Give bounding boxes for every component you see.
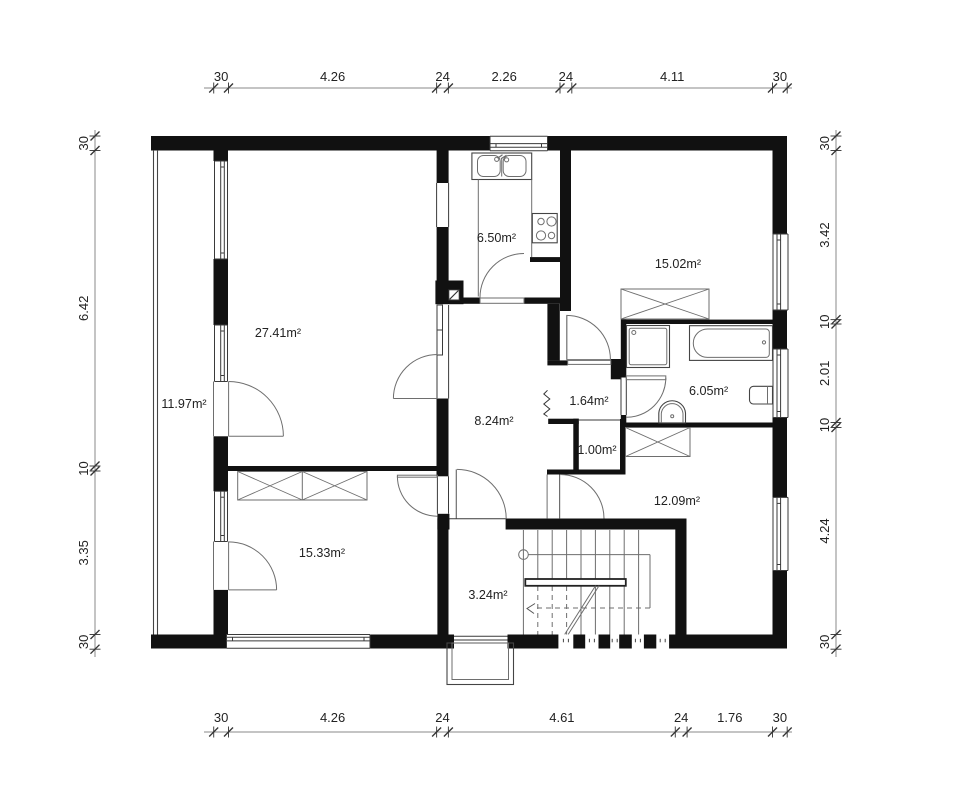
svg-text:10: 10 <box>76 461 91 475</box>
svg-text:4.26: 4.26 <box>320 69 345 84</box>
svg-text:30: 30 <box>817 136 832 150</box>
svg-text:30: 30 <box>76 136 91 150</box>
svg-text:1.64m²: 1.64m² <box>569 394 608 408</box>
svg-text:3.35: 3.35 <box>76 540 91 565</box>
svg-text:6.05m²: 6.05m² <box>689 384 728 398</box>
svg-text:6.42: 6.42 <box>76 296 91 321</box>
svg-text:2.01: 2.01 <box>817 361 832 386</box>
svg-text:24: 24 <box>435 710 449 725</box>
svg-text:3.24m²: 3.24m² <box>468 588 507 602</box>
svg-text:24: 24 <box>674 710 688 725</box>
svg-text:4.26: 4.26 <box>320 710 345 725</box>
svg-text:1.00m²: 1.00m² <box>577 443 616 457</box>
svg-text:30: 30 <box>817 635 832 649</box>
svg-text:24: 24 <box>435 69 449 84</box>
svg-text:30: 30 <box>773 69 787 84</box>
svg-text:10: 10 <box>817 418 832 432</box>
svg-text:30: 30 <box>214 710 228 725</box>
svg-text:12.09m²: 12.09m² <box>654 494 700 508</box>
svg-text:30: 30 <box>773 710 787 725</box>
svg-text:2.26: 2.26 <box>492 69 517 84</box>
svg-text:10: 10 <box>817 315 832 329</box>
svg-text:27.41m²: 27.41m² <box>255 326 301 340</box>
svg-text:11.97m²: 11.97m² <box>161 397 206 411</box>
svg-text:3.42: 3.42 <box>817 222 832 247</box>
svg-text:30: 30 <box>76 635 91 649</box>
svg-text:4.11: 4.11 <box>660 69 684 84</box>
svg-text:1.76: 1.76 <box>717 710 742 725</box>
svg-text:8.24m²: 8.24m² <box>474 414 513 428</box>
svg-text:4.61: 4.61 <box>549 710 574 725</box>
svg-text:30: 30 <box>214 69 228 84</box>
svg-text:4.24: 4.24 <box>817 518 832 543</box>
svg-text:24: 24 <box>559 69 573 84</box>
svg-text:6.50m²: 6.50m² <box>477 231 516 245</box>
svg-text:15.02m²: 15.02m² <box>655 257 701 271</box>
svg-text:15.33m²: 15.33m² <box>299 546 345 560</box>
